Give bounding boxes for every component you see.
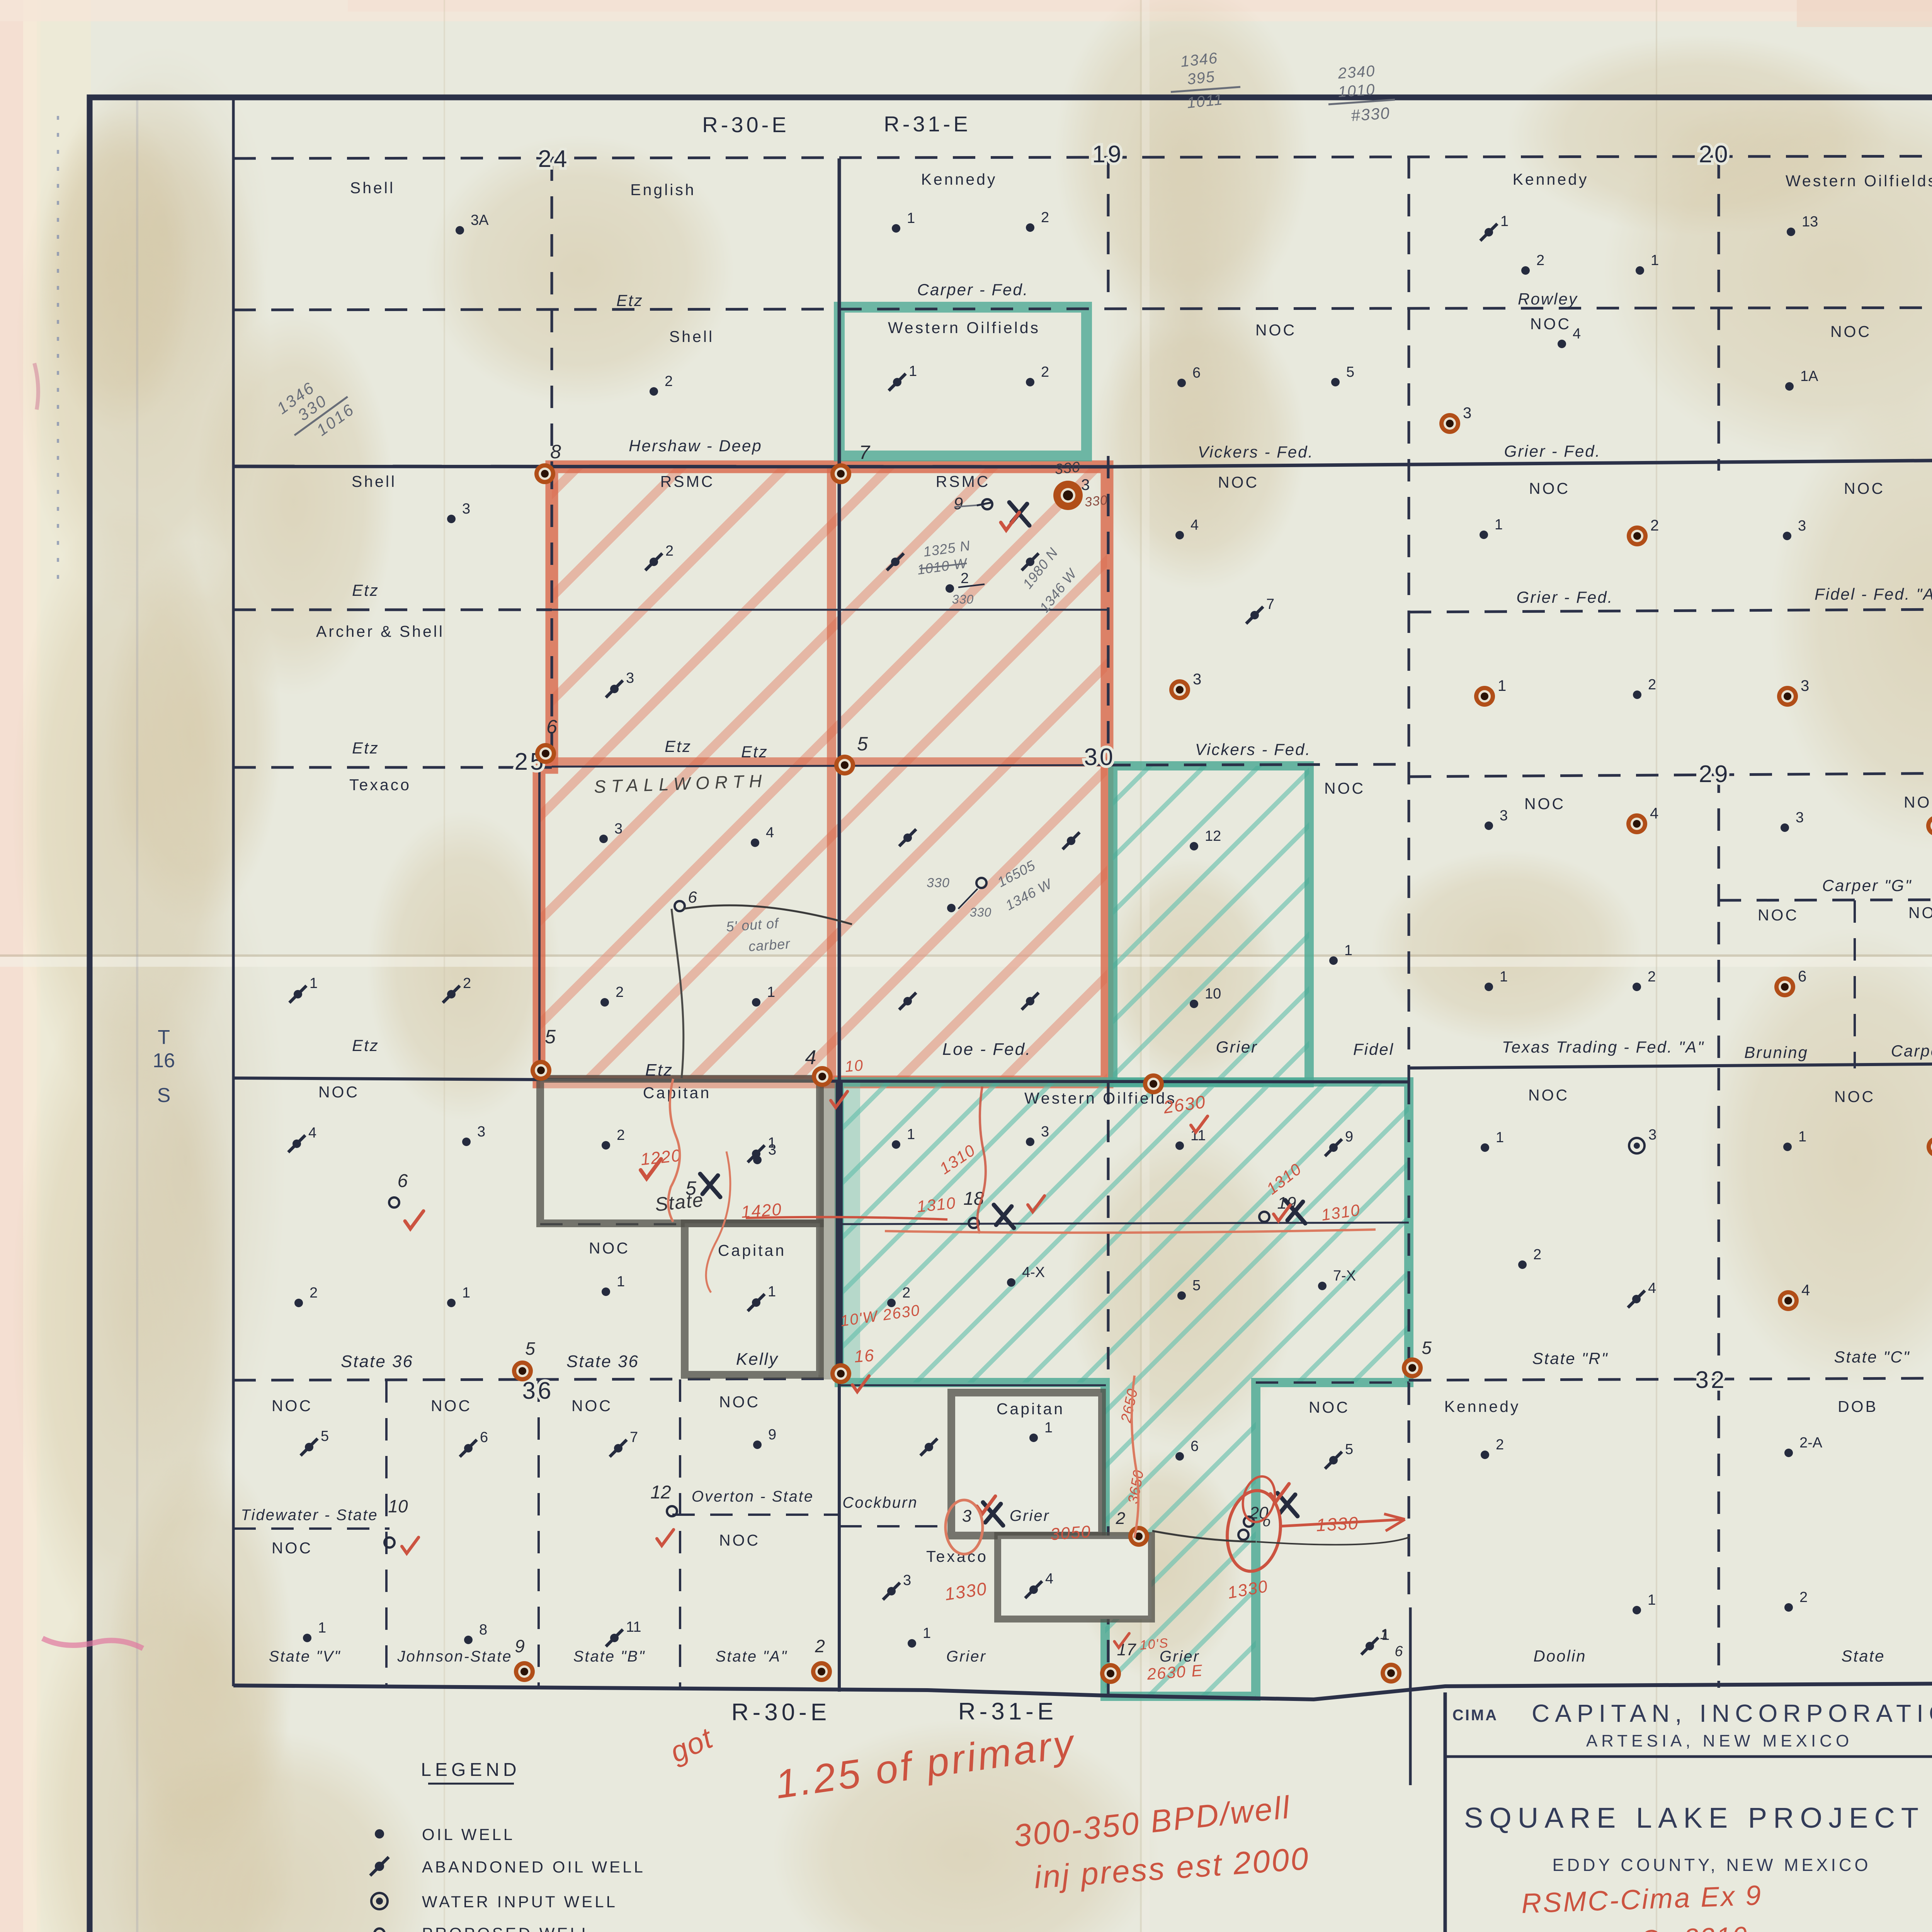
svg-text:Carper "G": Carper "G"	[1822, 876, 1912, 895]
svg-text:3: 3	[1193, 671, 1201, 688]
svg-text:395: 395	[1186, 68, 1216, 88]
svg-text:Grier: Grier	[1010, 1507, 1050, 1524]
svg-text:2: 2	[1533, 1247, 1541, 1263]
svg-text:2340: 2340	[1337, 63, 1376, 82]
svg-text:6: 6	[1798, 968, 1806, 985]
svg-text:1: 1	[1651, 252, 1659, 269]
svg-text:4-X: 4-X	[1022, 1264, 1045, 1281]
svg-text:Carper "G": Carper "G"	[1891, 1042, 1932, 1060]
svg-text:Grier: Grier	[1216, 1038, 1258, 1056]
svg-text:1: 1	[310, 975, 318, 992]
svg-text:Fidel: Fidel	[1353, 1040, 1394, 1058]
svg-text:4: 4	[1190, 517, 1199, 533]
svg-text:2: 2	[665, 373, 673, 389]
svg-text:Etz: Etz	[352, 739, 379, 757]
svg-text:Hershaw - Deep: Hershaw - Deep	[629, 437, 762, 455]
svg-text:3: 3	[1796, 810, 1804, 826]
svg-text:20: 20	[1699, 141, 1730, 168]
svg-text:NOC: NOC	[272, 1539, 313, 1557]
svg-text:1: 1	[1044, 1420, 1053, 1436]
svg-text:Etz: Etz	[741, 743, 768, 761]
svg-text:Etz: Etz	[645, 1061, 673, 1080]
svg-text:36: 36	[522, 1378, 554, 1404]
svg-text:State: State	[1841, 1647, 1885, 1665]
svg-text:16: 16	[854, 1346, 875, 1366]
svg-text:NOC: NOC	[318, 1083, 359, 1101]
svg-text:Texas Trading - Fed. "A": Texas Trading - Fed. "A"	[1502, 1038, 1704, 1056]
svg-text:3: 3	[614, 821, 622, 837]
svg-text:Capitan: Capitan	[997, 1400, 1065, 1418]
svg-text:1: 1	[1648, 1592, 1656, 1608]
svg-text:NOC: NOC	[719, 1393, 760, 1411]
svg-text:2: 2	[1116, 1509, 1125, 1528]
svg-text:1: 1	[907, 210, 915, 226]
svg-text:Johnson-State: Johnson-State	[397, 1648, 512, 1665]
svg-text:Loe - Fed.: Loe - Fed.	[942, 1040, 1032, 1059]
svg-text:9: 9	[768, 1427, 776, 1443]
svg-text:5: 5	[1422, 1338, 1432, 1358]
svg-text:Kelly: Kelly	[736, 1350, 779, 1369]
svg-text:7: 7	[630, 1429, 638, 1446]
svg-text:R-31-E: R-31-E	[958, 1698, 1057, 1725]
svg-text:3: 3	[1801, 677, 1809, 694]
svg-text:Grier - Fed.: Grier - Fed.	[1504, 442, 1601, 460]
svg-text:2: 2	[902, 1285, 910, 1301]
svg-text:Doolin: Doolin	[1533, 1647, 1586, 1665]
svg-text:NOC: NOC	[272, 1397, 313, 1415]
svg-text:Kennedy: Kennedy	[921, 170, 997, 188]
svg-text:2: 2	[1496, 1437, 1504, 1453]
svg-text:Cockburn: Cockburn	[842, 1494, 918, 1511]
svg-text:RSMC: RSMC	[660, 473, 715, 490]
svg-text:Archer & Shell: Archer & Shell	[316, 622, 444, 640]
svg-text:Shell: Shell	[350, 179, 395, 197]
svg-text:State "C": State "C"	[1834, 1348, 1910, 1366]
svg-text:330: 330	[1054, 459, 1081, 478]
svg-text:ARTESIA, NEW MEXICO: ARTESIA, NEW MEXICO	[1586, 1731, 1853, 1750]
svg-text:1: 1	[1498, 677, 1506, 694]
svg-text:NOC: NOC	[1908, 904, 1932, 922]
svg-text:3: 3	[1648, 1127, 1656, 1143]
svg-text:CAPITAN, INCORPORATION: CAPITAN, INCORPORATION	[1532, 1699, 1932, 1727]
svg-text:10: 10	[1205, 986, 1221, 1002]
svg-text:1: 1	[1500, 213, 1509, 230]
svg-text:Grier - Fed.: Grier - Fed.	[1517, 588, 1614, 606]
svg-text:ABANDONED OIL WELL: ABANDONED OIL WELL	[422, 1858, 645, 1876]
svg-text:3: 3	[1081, 476, 1090, 493]
svg-text:1A: 1A	[1800, 368, 1818, 384]
svg-text:3: 3	[1041, 1124, 1049, 1140]
svg-text:Kennedy: Kennedy	[1513, 170, 1589, 188]
svg-text:NOC: NOC	[431, 1397, 472, 1415]
svg-text:7: 7	[1266, 596, 1274, 612]
svg-text:carber: carber	[748, 935, 791, 954]
svg-text:3: 3	[626, 670, 634, 686]
svg-text:Kennedy: Kennedy	[1444, 1398, 1520, 1415]
svg-text:R-30-E: R-30-E	[702, 112, 789, 137]
svg-text:10: 10	[844, 1057, 864, 1075]
svg-text:1010: 1010	[1337, 81, 1376, 101]
svg-text:5: 5	[1192, 1277, 1201, 1294]
svg-text:4: 4	[308, 1125, 316, 1141]
svg-text:NOC: NOC	[1255, 321, 1296, 339]
svg-text:1: 1	[923, 1625, 931, 1641]
svg-text:Shell: Shell	[352, 473, 396, 490]
svg-text:10: 10	[388, 1496, 408, 1516]
svg-text:12: 12	[1205, 828, 1221, 844]
svg-text:1: 1	[1496, 1129, 1504, 1146]
svg-text:Western Oilfields: Western Oilfields	[888, 319, 1040, 337]
svg-text:R-30-E: R-30-E	[731, 1699, 830, 1726]
svg-text:2: 2	[617, 1127, 625, 1143]
svg-text:EDDY COUNTY, NEW MEXICO: EDDY COUNTY, NEW MEXICO	[1553, 1855, 1871, 1875]
svg-text:R-31-E: R-31-E	[884, 112, 971, 136]
svg-text:WATER INPUT WELL: WATER INPUT WELL	[422, 1893, 617, 1911]
svg-text:8: 8	[479, 1622, 487, 1638]
svg-text:1: 1	[767, 984, 775, 1000]
svg-text:4: 4	[1573, 326, 1581, 342]
svg-text:2: 2	[1041, 209, 1049, 226]
svg-text:2: 2	[1041, 364, 1049, 380]
svg-text:Bruning: Bruning	[1744, 1043, 1808, 1061]
svg-text:30: 30	[1084, 744, 1116, 770]
svg-text:1: 1	[768, 1135, 776, 1151]
svg-text:NOC: NOC	[1844, 480, 1885, 497]
svg-text:Tidewater - State: Tidewater - State	[241, 1507, 378, 1524]
svg-text:Overton - State: Overton - State	[692, 1488, 814, 1505]
svg-text:3: 3	[1463, 405, 1471, 422]
svg-text:Western Oilfields: Western Oilfields	[1786, 172, 1932, 190]
svg-text:5: 5	[525, 1338, 535, 1359]
svg-text:2: 2	[815, 1636, 825, 1656]
svg-text:5: 5	[1345, 1441, 1353, 1458]
svg-text:2: 2	[310, 1285, 318, 1301]
svg-text:6: 6	[1395, 1643, 1403, 1660]
svg-text:Carper - Fed.: Carper - Fed.	[917, 281, 1029, 299]
svg-text:4: 4	[1045, 1571, 1053, 1587]
svg-text:330: 330	[927, 876, 950, 890]
svg-text:3: 3	[477, 1124, 485, 1140]
svg-text:2-A: 2-A	[1799, 1435, 1823, 1451]
svg-text:1: 1	[768, 1284, 776, 1300]
svg-text:4: 4	[805, 1046, 816, 1069]
svg-text:2: 2	[665, 543, 673, 559]
svg-text:5: 5	[321, 1428, 329, 1444]
svg-text:NOC: NOC	[1528, 1086, 1569, 1104]
svg-text:Vickers - Fed.: Vickers - Fed.	[1198, 443, 1314, 461]
svg-text:S: S	[157, 1084, 171, 1107]
svg-text:1: 1	[1500, 969, 1508, 985]
svg-text:RSMC: RSMC	[936, 473, 990, 490]
svg-text:9: 9	[515, 1636, 525, 1656]
svg-text:3: 3	[1798, 518, 1806, 534]
svg-text:9: 9	[1345, 1129, 1353, 1145]
svg-text:3: 3	[462, 501, 470, 517]
svg-text:4: 4	[1650, 805, 1658, 822]
svg-text:English: English	[630, 181, 696, 199]
svg-text:2: 2	[1648, 969, 1656, 985]
svg-text:SQUARE LAKE PROJECT: SQUARE LAKE PROJECT	[1464, 1802, 1925, 1834]
svg-text:State 36: State 36	[566, 1352, 639, 1371]
svg-text:State "A": State "A"	[716, 1648, 788, 1665]
svg-text:T: T	[158, 1026, 170, 1049]
svg-text:CIMA: CIMA	[1452, 1707, 1498, 1724]
svg-text:Fidel - Fed. "A": Fidel - Fed. "A"	[1815, 585, 1932, 603]
svg-text:Shell: Shell	[669, 328, 714, 345]
svg-text:1: 1	[1495, 517, 1503, 533]
svg-text:State 36: State 36	[341, 1352, 413, 1371]
svg-text:NOC: NOC	[719, 1531, 760, 1549]
svg-text:5: 5	[545, 1026, 556, 1048]
svg-text:4: 4	[1801, 1282, 1810, 1299]
svg-text:330: 330	[970, 905, 992, 919]
svg-text:9: 9	[954, 494, 963, 513]
svg-text:OIL WELL: OIL WELL	[422, 1825, 515, 1844]
svg-text:Rowley: Rowley	[1518, 290, 1578, 308]
svg-text:1: 1	[1798, 1129, 1806, 1145]
svg-text:2: 2	[961, 570, 969, 587]
svg-text:PROPOSED WELL: PROPOSED WELL	[422, 1924, 593, 1932]
svg-text:13: 13	[1802, 214, 1818, 230]
svg-text:3A: 3A	[471, 212, 489, 228]
svg-text:1: 1	[318, 1620, 326, 1636]
svg-text:6: 6	[480, 1429, 488, 1446]
svg-text:1: 1	[462, 1285, 470, 1301]
svg-text:1: 1	[1380, 1626, 1388, 1643]
svg-text:DOB: DOB	[1838, 1398, 1878, 1415]
svg-text:3: 3	[903, 1572, 911, 1588]
svg-text:NOC: NOC	[1830, 323, 1871, 340]
svg-text:8: 8	[550, 441, 561, 463]
svg-text:330: 330	[1084, 493, 1108, 510]
svg-text:State "V": State "V"	[269, 1648, 341, 1665]
svg-text:NOC: NOC	[1324, 779, 1365, 797]
svg-text:2: 2	[1799, 1589, 1808, 1605]
svg-text:330: 330	[952, 592, 974, 606]
svg-text:2: 2	[1536, 252, 1544, 269]
svg-text:Etz: Etz	[616, 291, 643, 310]
svg-text:5: 5	[1346, 364, 1354, 380]
svg-text:3: 3	[1500, 808, 1508, 824]
svg-text:6: 6	[398, 1171, 408, 1191]
svg-text:NOC: NOC	[1834, 1088, 1875, 1105]
svg-text:NOC: NOC	[571, 1397, 612, 1415]
svg-text:NOC: NOC	[589, 1239, 630, 1257]
svg-text:1: 1	[909, 363, 917, 379]
svg-text:State "R": State "R"	[1532, 1349, 1609, 1367]
svg-text:12: 12	[650, 1482, 671, 1503]
svg-text:LEGEND: LEGEND	[421, 1760, 520, 1780]
svg-text:17: 17	[1117, 1640, 1136, 1659]
svg-text:11: 11	[626, 1619, 641, 1635]
svg-text:2: 2	[1648, 677, 1656, 693]
svg-text:10'S: 10'S	[1139, 1636, 1169, 1653]
svg-text:Texaco: Texaco	[926, 1548, 988, 1565]
svg-text:5: 5	[857, 733, 868, 755]
svg-text:Etz: Etz	[665, 737, 692, 755]
svg-text:1: 1	[907, 1126, 915, 1143]
svg-text:#330: #330	[1350, 104, 1391, 125]
svg-text:24: 24	[538, 146, 570, 172]
svg-text:3050: 3050	[1049, 1522, 1092, 1544]
svg-text:19: 19	[1092, 141, 1124, 168]
svg-text:Grier: Grier	[946, 1648, 986, 1665]
svg-text:29: 29	[1699, 761, 1730, 787]
svg-text:6: 6	[688, 888, 697, 906]
svg-text:State "B": State "B"	[573, 1648, 646, 1665]
svg-text:Vickers - Fed.: Vickers - Fed.	[1195, 740, 1311, 759]
svg-text:Capitan: Capitan	[643, 1084, 711, 1102]
svg-text:4: 4	[1648, 1280, 1656, 1296]
svg-text:NOC: NOC	[1524, 795, 1565, 813]
svg-text:6: 6	[546, 716, 557, 738]
svg-text:NOC: NOC	[1529, 480, 1570, 497]
svg-text:16: 16	[153, 1049, 175, 1072]
svg-text:NOC: NOC	[1904, 793, 1932, 811]
svg-text:1: 1	[617, 1274, 625, 1290]
svg-text:2: 2	[463, 975, 471, 992]
svg-text:NOC: NOC	[1309, 1398, 1350, 1416]
svg-text:Etz: Etz	[352, 1036, 379, 1054]
svg-text:Capitan: Capitan	[718, 1242, 786, 1259]
svg-text:NOC: NOC	[1530, 315, 1571, 333]
svg-text:NOC: NOC	[1218, 473, 1259, 491]
svg-text:2: 2	[1650, 517, 1659, 534]
svg-text:3: 3	[962, 1507, 972, 1526]
svg-text:6: 6	[1190, 1438, 1199, 1454]
svg-text:Etz: Etz	[352, 581, 379, 599]
svg-text:4: 4	[766, 825, 774, 841]
svg-text:NOC: NOC	[1758, 906, 1799, 924]
svg-text:6: 6	[1192, 365, 1201, 381]
svg-text:2: 2	[616, 984, 624, 1000]
svg-text:7-X: 7-X	[1333, 1268, 1356, 1284]
svg-text:1: 1	[1344, 942, 1352, 959]
svg-text:7: 7	[859, 442, 871, 463]
svg-text:32: 32	[1696, 1367, 1727, 1393]
svg-text:Texaco: Texaco	[349, 776, 411, 794]
